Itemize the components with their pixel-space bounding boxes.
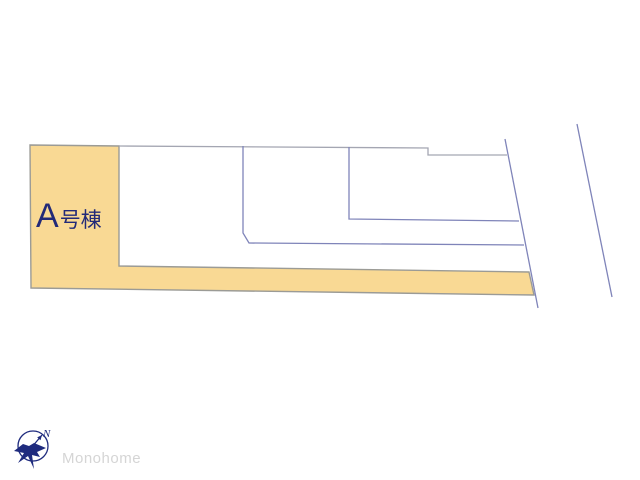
compass-north-label: N [42, 428, 51, 440]
building-a-label-letter: A [36, 199, 59, 233]
building-a-label: A 号棟 [36, 199, 102, 233]
compass-icon: N [14, 428, 51, 469]
road-edge-line [577, 124, 612, 297]
site-plan-page: N A 号棟 Monohome [0, 0, 640, 480]
compass-bird-icon [14, 443, 46, 469]
site-plan-canvas: N [0, 0, 640, 480]
lot-boundary-left [243, 146, 524, 245]
plan-top-boundary [119, 146, 507, 155]
lot-boundary-middle [349, 147, 519, 221]
watermark-logo-text: Monohome [62, 450, 141, 467]
building-a-label-suffix: 号棟 [60, 210, 102, 231]
